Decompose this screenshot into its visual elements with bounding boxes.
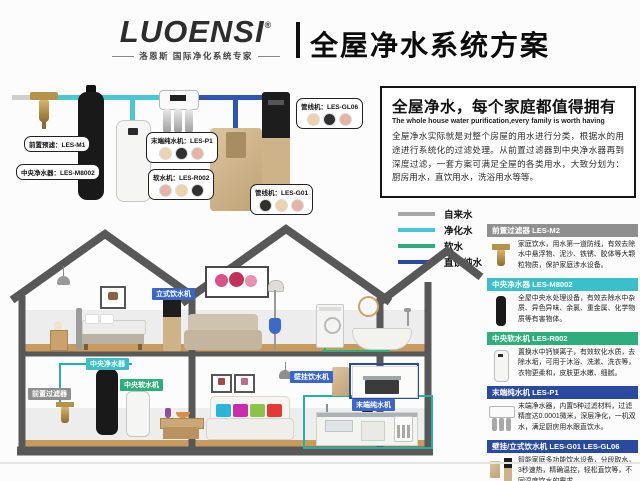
poster-page: LUOENSI® 洛恩斯 国际净化系统专家 全屋净水系统方案 前置预滤：LES-… — [0, 0, 640, 481]
house-standing-dispenser-top — [163, 299, 181, 317]
table-lamp — [54, 321, 62, 330]
sofa-beige-seat — [184, 330, 262, 350]
round-mirror — [358, 296, 379, 317]
avatar — [291, 199, 304, 212]
house-softener — [126, 391, 150, 437]
avatar — [275, 199, 288, 212]
wall-picture-small — [211, 374, 232, 393]
avatar — [175, 147, 188, 160]
floor-lamp-shade — [268, 280, 284, 292]
balloon-pipeline-g01: 管线机：LES-G01 — [250, 184, 313, 215]
washing-machine — [316, 304, 344, 348]
avatar — [259, 199, 272, 212]
kitchen-upper-cabinet — [352, 366, 418, 398]
sofa-white-seat — [206, 418, 294, 440]
balloon-prefilter: 前置预滤：LES-M1 — [24, 136, 90, 152]
usage-avatars — [151, 147, 213, 160]
balloon-pipeline-gl06: 管线机：LES-GL06 — [296, 98, 363, 129]
avatar — [191, 147, 204, 160]
shower-hose — [407, 312, 409, 326]
avatar — [191, 184, 204, 197]
balloon-central: 中央净水器：LES-M8002 — [16, 164, 100, 180]
house-wall-dispenser — [332, 367, 349, 396]
bed-base — [82, 334, 144, 344]
usage-avatars — [301, 113, 358, 126]
coffee-table-base — [163, 427, 199, 439]
faucet — [326, 404, 328, 412]
house-prefilter-body — [61, 407, 69, 423]
avatar — [175, 184, 188, 197]
bed-pillow — [100, 314, 114, 324]
pendant-lamp — [57, 276, 70, 285]
balloon-ro: 末端纯水机：LES-P1 — [146, 132, 218, 163]
table-vase — [165, 408, 171, 418]
nightstand — [50, 330, 68, 351]
pillow-magenta — [233, 404, 248, 417]
avatar — [323, 113, 336, 126]
pillow-cyan — [216, 404, 231, 417]
bathtub — [352, 328, 412, 350]
house-ro-unit — [394, 416, 413, 442]
usage-avatars — [153, 184, 209, 197]
house-label-ro: 末端纯水机 — [352, 399, 395, 411]
pillow-red — [267, 404, 282, 417]
house-label-central: 中央净水器 — [86, 358, 129, 370]
house-label-wall-dispenser: 壁挂饮水机 — [290, 371, 333, 383]
bed-leg — [84, 344, 88, 350]
usage-avatars — [255, 199, 308, 212]
bed-pillow — [85, 314, 99, 324]
avatar — [307, 113, 320, 126]
wall-picture-small — [234, 374, 255, 393]
avatar — [159, 147, 172, 160]
house-label-softener: 中央软水机 — [120, 379, 163, 391]
house-central-purifier — [96, 369, 118, 435]
bed-leg — [138, 344, 142, 350]
pillow-green — [250, 404, 265, 417]
wall-picture-deer — [100, 286, 126, 309]
house-label-prefilter: 前置过滤器 — [28, 388, 71, 400]
house-label-standing: 立式饮水机 — [152, 288, 195, 300]
decor-vase — [269, 318, 281, 334]
balloon-softener: 软水机：LES-R002 — [148, 169, 214, 200]
footer-divider — [0, 462, 640, 464]
avatar — [159, 184, 172, 197]
avatar — [339, 113, 352, 126]
wall-picture-flowers — [205, 266, 269, 298]
